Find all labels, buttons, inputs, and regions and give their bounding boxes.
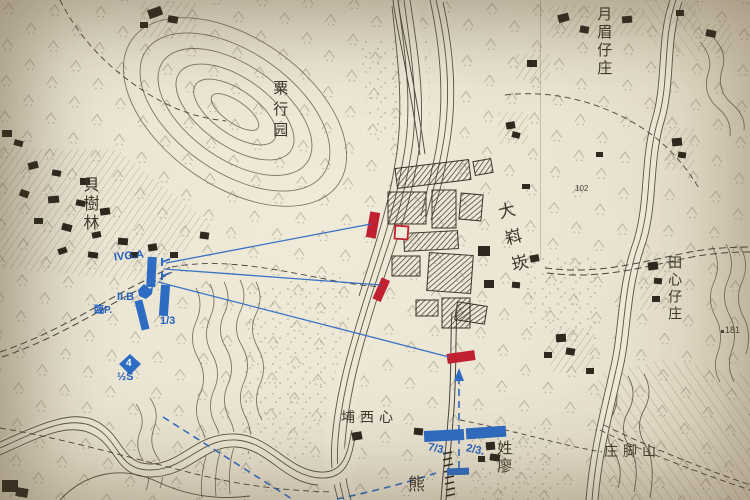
unit-label-half-s: ½S — [117, 371, 134, 384]
red-open-square — [395, 226, 409, 240]
place-label-yuemeizizhuang: 月眉仔庄 — [595, 6, 612, 78]
place-label-beishulin: 貝樹林 — [80, 176, 98, 233]
bottom-right-slope — [598, 360, 750, 500]
unit-label-4: 4 — [126, 358, 132, 370]
map-sheet: 月眉仔庄 粟行园 貝樹林 大嵙崁 田心仔庄 庄脚山 姓廖 埔西心 熊 102 1… — [0, 0, 750, 500]
place-label-suhangyuan: 粟行园 — [271, 80, 288, 143]
spot-height-181: 181 — [725, 325, 740, 335]
unit-label-iib: II.B — [117, 291, 134, 304]
unit-label-1-3: 1/3 — [160, 315, 175, 328]
place-label-xiong: 熊 — [408, 476, 425, 496]
place-label-zhuangjiaoshan: 庄脚山 — [604, 444, 661, 460]
spot-height-dot — [721, 330, 724, 333]
place-label-xingliao: 姓廖 — [495, 440, 512, 476]
unit-label-rin-p: 臨P. — [94, 305, 112, 317]
sheet-crease — [540, 0, 541, 260]
place-label-puxixin: 埔西心 — [341, 410, 398, 426]
place-label-tianxinzizhuang: 田心仔庄 — [666, 255, 682, 323]
spot-height-102: 102 — [575, 184, 588, 193]
